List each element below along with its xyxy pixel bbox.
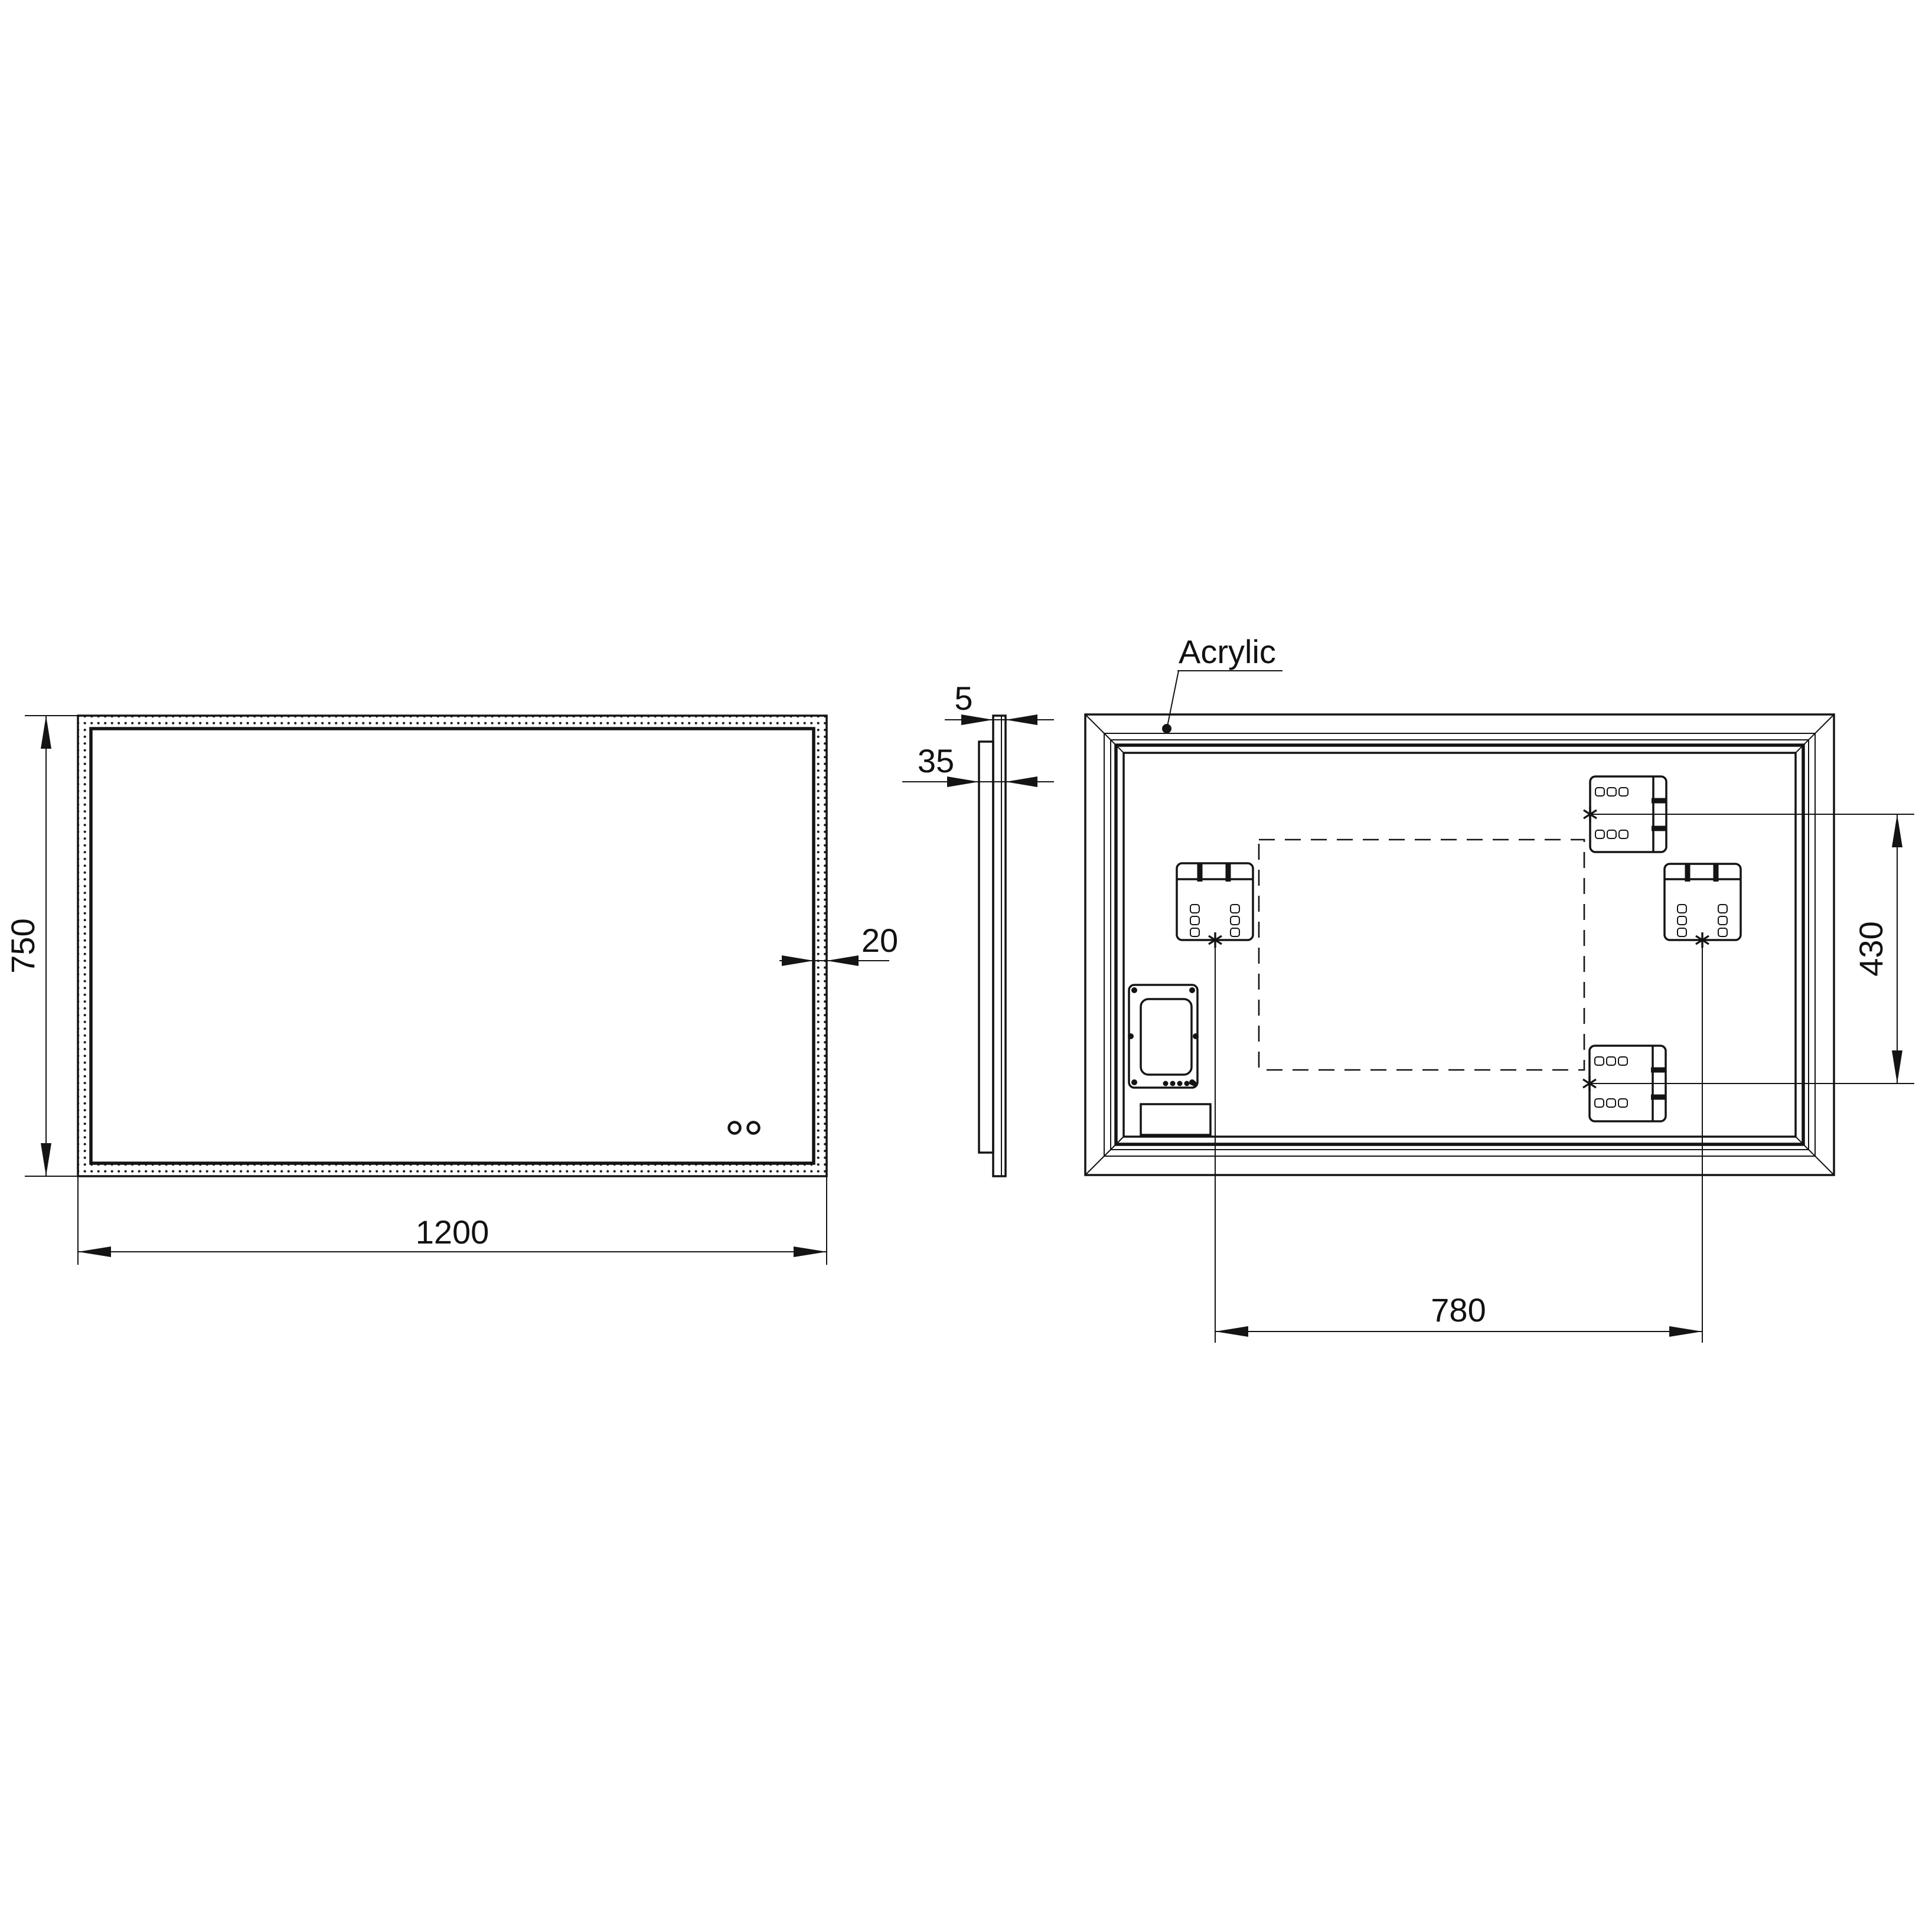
dashed-zone	[1259, 840, 1584, 1070]
back-view: Acrylic	[1085, 633, 1914, 1343]
callout-dot	[1162, 724, 1171, 733]
back-frame-line-1	[1104, 733, 1815, 1156]
bracket-vertical-dimension: 430	[1590, 814, 1914, 1084]
led-band	[78, 716, 827, 1176]
thickness-dimension: 5	[945, 680, 1054, 725]
material-callout-label: Acrylic	[1179, 633, 1276, 670]
border-dimension-label: 20	[861, 922, 898, 959]
side-glass-panel	[993, 716, 1006, 1176]
junction-box	[1128, 985, 1199, 1088]
back-frame-line-3	[1116, 745, 1803, 1144]
rating-label	[1141, 1104, 1210, 1135]
touch-sensor-icon	[729, 1122, 740, 1134]
width-dimension: 1200	[78, 1176, 827, 1265]
mirror-drawing-svg: 750 1200 20 5	[0, 0, 1932, 1932]
width-dimension-label: 1200	[416, 1213, 489, 1251]
bracket-holes	[1595, 788, 1628, 838]
back-inner-rect	[1124, 753, 1796, 1137]
touch-sensor-icon	[748, 1122, 759, 1134]
bracket-holes	[1595, 1057, 1627, 1107]
back-outer-rect	[1085, 714, 1834, 1175]
bracket-vertical-dimension-label: 430	[1852, 921, 1889, 976]
front-outer-rect	[78, 716, 827, 1176]
front-inner-rect	[91, 729, 814, 1163]
material-callout: Acrylic	[1162, 633, 1282, 733]
side-back-box	[979, 742, 993, 1153]
mount-bracket-right	[1665, 864, 1741, 948]
height-dimension: 750	[4, 716, 78, 1176]
border-dimension: 20	[779, 922, 898, 966]
technical-drawing-page: 750 1200 20 5	[0, 0, 1932, 1932]
thickness-dimension-label: 5	[954, 680, 972, 717]
bracket-horizontal-dimension-label: 780	[1431, 1291, 1486, 1329]
mount-bracket-left	[1177, 863, 1253, 948]
side-view: 5 35	[902, 680, 1054, 1176]
front-view: 750 1200 20	[4, 716, 898, 1265]
height-dimension-label: 750	[4, 918, 41, 973]
depth-dimension-label: 35	[918, 742, 954, 779]
bracket-holes	[1678, 905, 1727, 936]
bracket-horizontal-dimension: 780	[1215, 940, 1702, 1343]
bracket-holes	[1190, 905, 1239, 936]
